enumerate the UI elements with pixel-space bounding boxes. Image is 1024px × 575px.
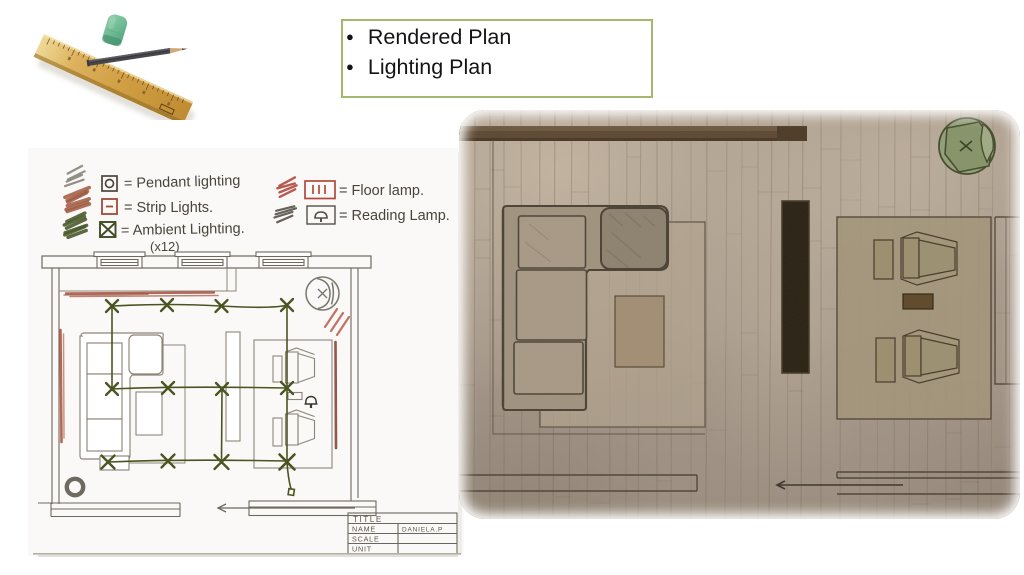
svg-text:NAME: NAME <box>352 525 376 534</box>
svg-text:UNIT: UNIT <box>352 545 372 554</box>
svg-text:SCALE: SCALE <box>352 535 380 544</box>
svg-text:DANIELA.P: DANIELA.P <box>402 527 443 534</box>
svg-text:= Reading Lamp.: = Reading Lamp. <box>339 208 450 224</box>
svg-text:= Strip Lights.: = Strip Lights. <box>124 200 213 216</box>
svg-text:TITLE: TITLE <box>353 515 383 524</box>
svg-text:= Pendant lighting: = Pendant lighting <box>124 173 241 192</box>
svg-text:= Floor lamp.: = Floor lamp. <box>339 183 424 199</box>
svg-text:= Ambient Lighting.: = Ambient Lighting. <box>121 221 245 239</box>
